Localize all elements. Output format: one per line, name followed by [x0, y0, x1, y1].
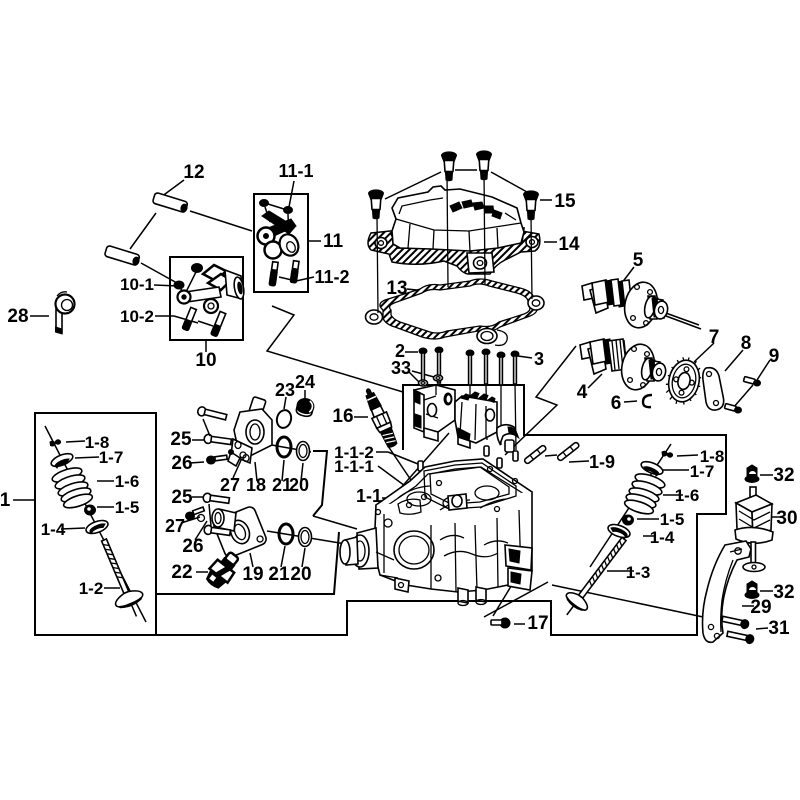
svg-text:1-6: 1-6 — [115, 472, 140, 491]
svg-text:26: 26 — [182, 536, 203, 557]
svg-text:1-4: 1-4 — [650, 528, 675, 547]
svg-text:20: 20 — [290, 564, 311, 585]
svg-text:32: 32 — [773, 465, 794, 486]
svg-text:1-1-1: 1-1-1 — [334, 457, 374, 476]
svg-text:1-6: 1-6 — [675, 486, 700, 505]
svg-text:1-5: 1-5 — [660, 510, 685, 529]
svg-text:6: 6 — [611, 393, 622, 414]
svg-text:22: 22 — [171, 562, 192, 583]
svg-text:31: 31 — [768, 618, 790, 639]
svg-text:32: 32 — [773, 582, 794, 603]
svg-text:16: 16 — [332, 406, 353, 427]
svg-text:25: 25 — [171, 487, 193, 508]
svg-text:21: 21 — [268, 564, 290, 585]
svg-text:11-1: 11-1 — [278, 161, 313, 181]
svg-text:26: 26 — [171, 453, 192, 474]
svg-text:1-7: 1-7 — [99, 448, 124, 467]
svg-text:15: 15 — [554, 191, 576, 212]
svg-text:11-2: 11-2 — [314, 267, 349, 287]
svg-text:14: 14 — [558, 234, 580, 255]
svg-text:1-7: 1-7 — [690, 462, 715, 481]
svg-text:8: 8 — [741, 333, 752, 354]
svg-text:13: 13 — [386, 278, 407, 299]
svg-text:30: 30 — [776, 508, 797, 529]
svg-text:11: 11 — [323, 231, 344, 252]
svg-text:10-2: 10-2 — [120, 307, 154, 326]
svg-text:9: 9 — [769, 346, 780, 367]
svg-text:17: 17 — [527, 613, 548, 634]
svg-text:7: 7 — [709, 327, 720, 348]
svg-text:1: 1 — [0, 490, 11, 511]
svg-text:3: 3 — [534, 349, 544, 369]
svg-text:19: 19 — [242, 564, 263, 585]
svg-text:1-3: 1-3 — [626, 563, 651, 582]
svg-text:10: 10 — [195, 350, 216, 371]
svg-text:24: 24 — [295, 372, 315, 392]
svg-text:33: 33 — [391, 358, 411, 378]
svg-text:5: 5 — [633, 250, 644, 271]
svg-text:1-4: 1-4 — [41, 520, 66, 539]
svg-text:1-2: 1-2 — [79, 579, 104, 598]
svg-text:10-1: 10-1 — [120, 275, 154, 294]
svg-text:23: 23 — [275, 380, 295, 400]
svg-text:4: 4 — [577, 382, 588, 403]
svg-text:12: 12 — [183, 162, 204, 183]
svg-text:28: 28 — [7, 306, 28, 327]
svg-text:20: 20 — [289, 475, 309, 495]
svg-text:1-1: 1-1 — [356, 486, 382, 506]
svg-text:18: 18 — [246, 475, 266, 495]
svg-text:1-5: 1-5 — [115, 498, 140, 517]
svg-text:27: 27 — [220, 475, 240, 495]
svg-text:27: 27 — [165, 516, 185, 536]
svg-text:29: 29 — [750, 597, 771, 618]
svg-text:25: 25 — [170, 429, 192, 450]
svg-text:1-9: 1-9 — [589, 452, 615, 472]
